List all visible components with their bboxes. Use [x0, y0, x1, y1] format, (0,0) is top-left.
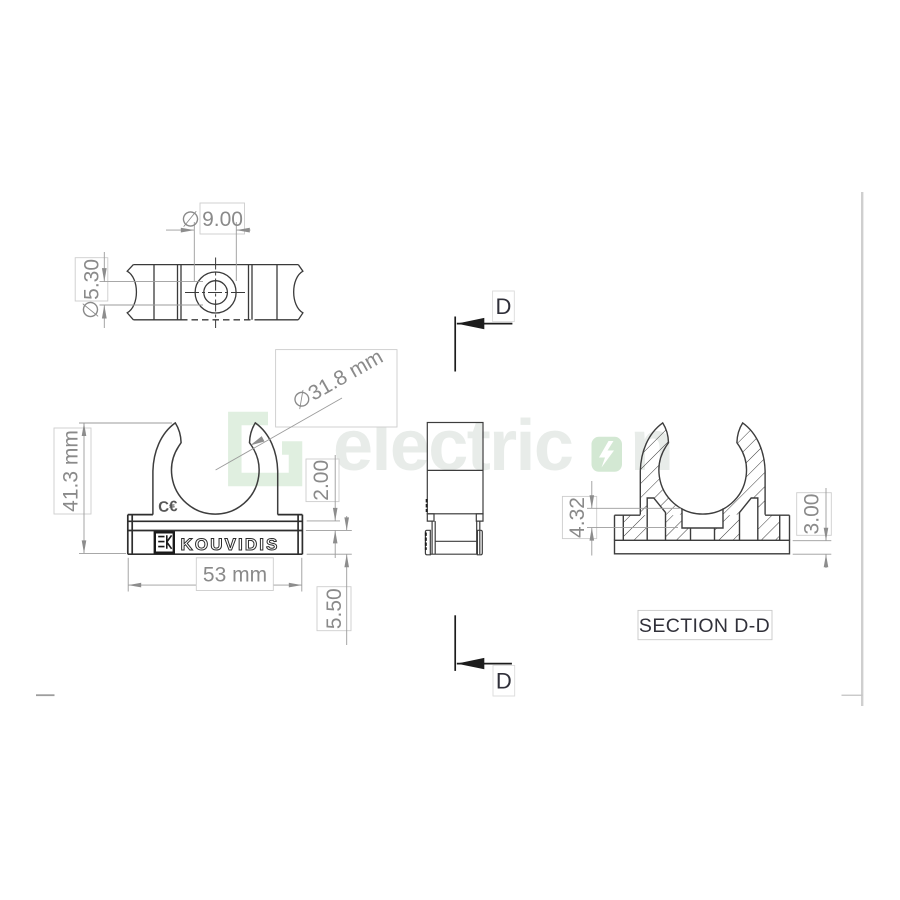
- svg-text:∅: ∅: [181, 208, 200, 232]
- svg-text:SECTION D-D: SECTION D-D: [639, 615, 770, 637]
- svg-text:∅: ∅: [79, 300, 103, 319]
- svg-text:KOUVIDIS: KOUVIDIS: [181, 535, 280, 554]
- svg-text:5.50: 5.50: [323, 588, 346, 629]
- svg-text:3.00: 3.00: [801, 494, 824, 535]
- svg-text:D: D: [496, 669, 512, 694]
- svg-text:9.00: 9.00: [202, 208, 243, 231]
- svg-text:4.32: 4.32: [566, 497, 589, 538]
- svg-text:C€: C€: [158, 498, 179, 516]
- svg-text:53 mm: 53 mm: [203, 564, 267, 587]
- svg-text:41.3 mm: 41.3 mm: [60, 430, 83, 512]
- svg-text:2.00: 2.00: [310, 460, 333, 501]
- svg-text:5.30: 5.30: [81, 259, 104, 300]
- svg-text:D: D: [495, 294, 511, 319]
